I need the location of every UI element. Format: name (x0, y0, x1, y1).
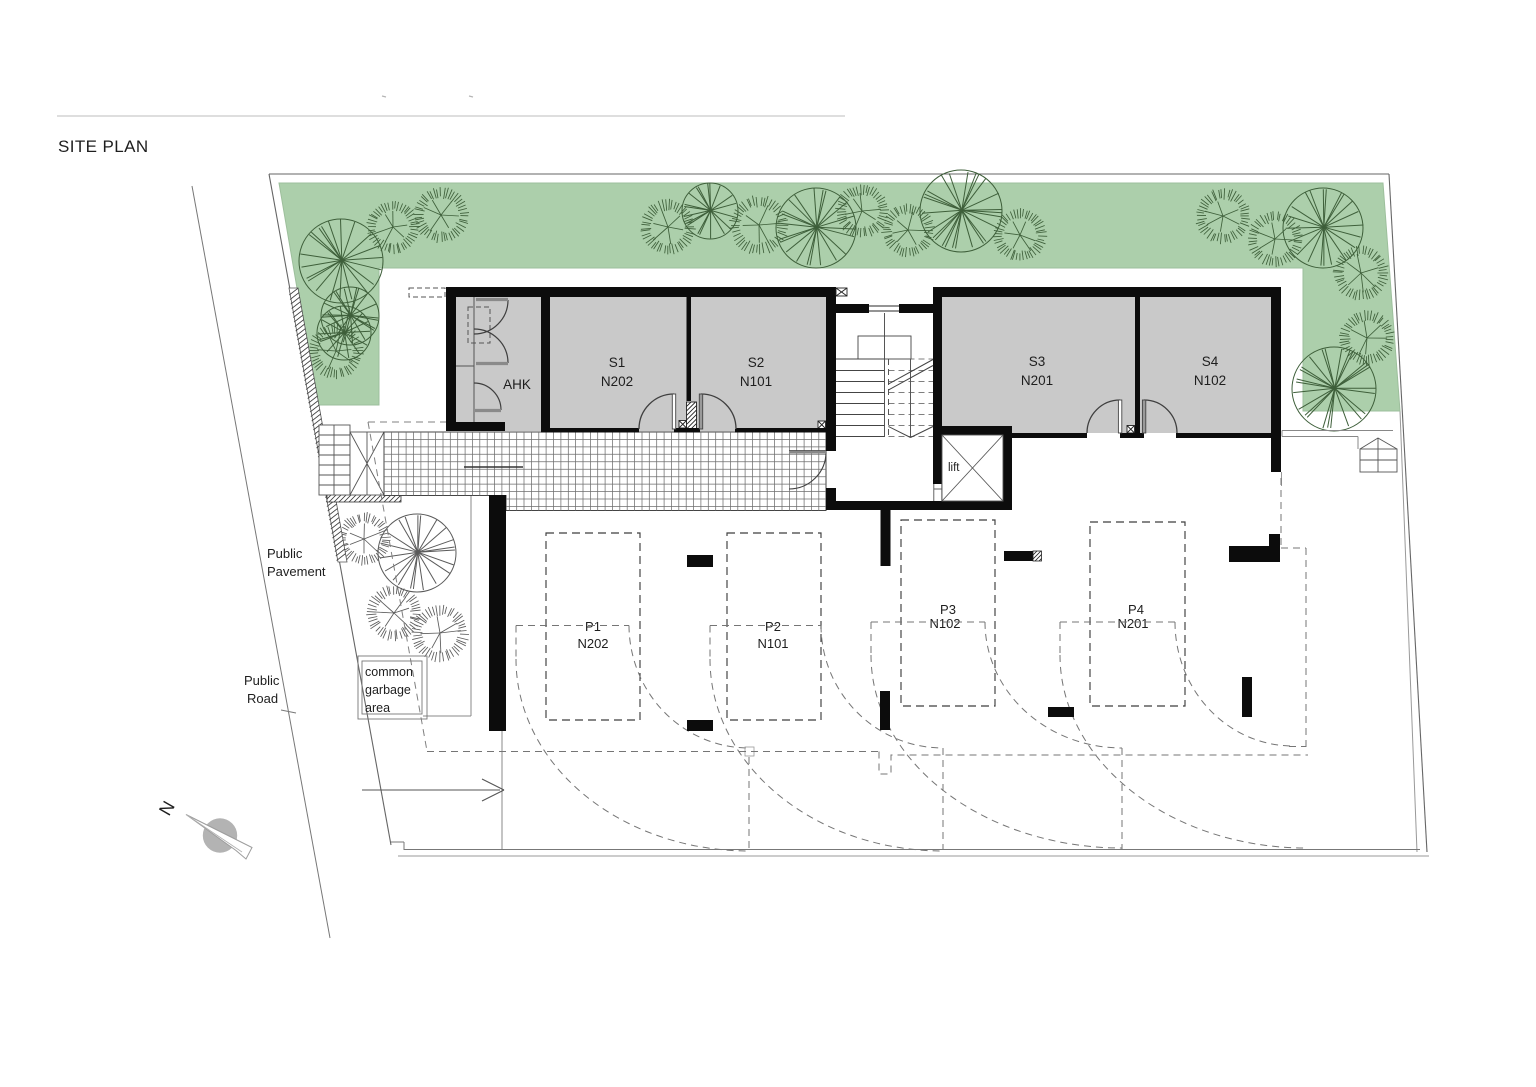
svg-text:S4: S4 (1202, 354, 1219, 369)
svg-text:SITE PLAN: SITE PLAN (58, 137, 149, 156)
svg-text:garbage: garbage (365, 683, 411, 697)
svg-text:N202: N202 (577, 636, 608, 651)
svg-text:S3: S3 (1029, 354, 1046, 369)
svg-text:N102: N102 (1194, 373, 1226, 388)
svg-text:Public: Public (244, 673, 280, 688)
svg-text:AHK: AHK (503, 377, 531, 392)
svg-text:common: common (365, 665, 413, 679)
svg-text:N102: N102 (929, 616, 960, 631)
svg-text:N101: N101 (757, 636, 788, 651)
svg-text:N202: N202 (601, 374, 633, 389)
svg-text:Pavement: Pavement (267, 564, 326, 579)
svg-text:S1: S1 (609, 355, 626, 370)
svg-text:P4: P4 (1128, 602, 1144, 617)
svg-text:Public: Public (267, 546, 303, 561)
svg-text:P3: P3 (940, 602, 956, 617)
svg-text:N201: N201 (1117, 616, 1148, 631)
svg-text:N101: N101 (740, 374, 772, 389)
svg-text:area: area (365, 701, 390, 715)
svg-text:Road: Road (247, 691, 278, 706)
svg-text:P1: P1 (585, 619, 601, 634)
svg-text:P2: P2 (765, 619, 781, 634)
svg-text:N201: N201 (1021, 373, 1053, 388)
svg-text:S2: S2 (748, 355, 765, 370)
svg-text:N: N (155, 798, 179, 819)
svg-text:lift: lift (948, 462, 960, 474)
